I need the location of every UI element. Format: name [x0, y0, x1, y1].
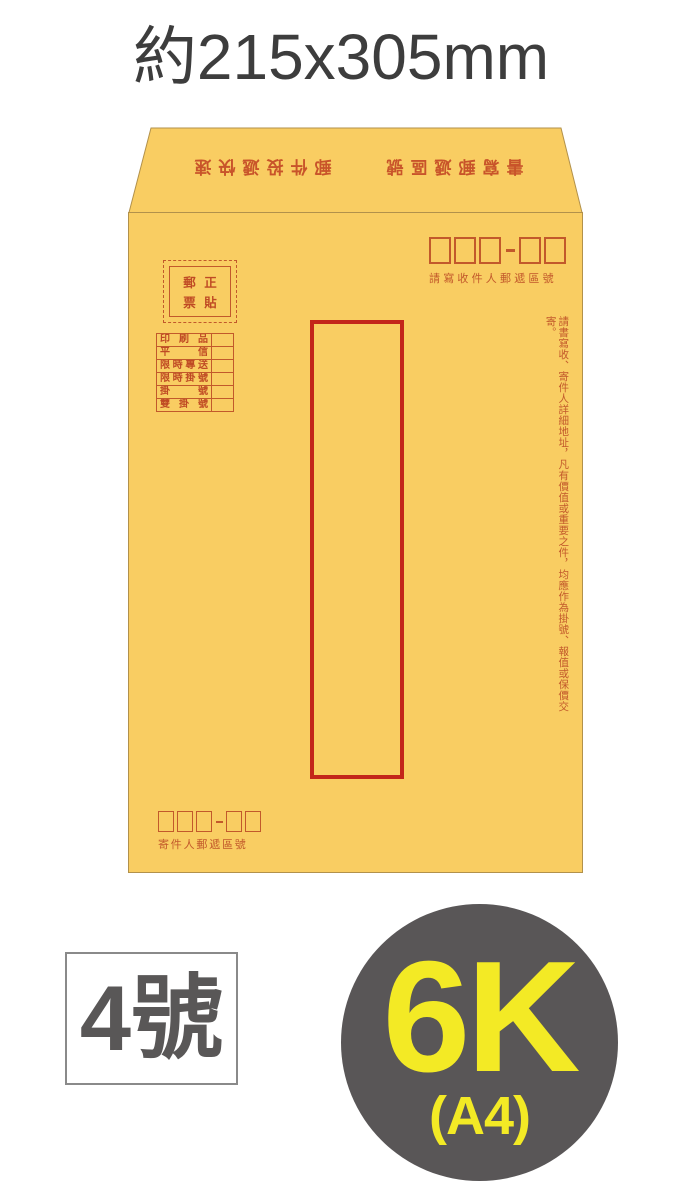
stamp-char: 貼 — [204, 292, 217, 311]
recipient-zip-label: 請寫收件人郵遞區號 — [429, 270, 569, 286]
envelope-illustration: 書寫郵遞區號 郵件投遞快速 郵 正 票 貼 請寫收件人郵遞區號 — [128, 127, 583, 873]
zip-digit-box — [177, 811, 193, 832]
mail-type-table: 印刷品 平信 限時專送 限時掛號 掛號 雙掛號 — [156, 333, 234, 412]
table-row: 限時掛號 — [157, 373, 233, 386]
size-title: 約215x305mm — [0, 6, 682, 98]
stamp-placement-box: 郵 正 票 貼 — [163, 260, 237, 323]
paper-size-subtext: (A4) — [429, 1089, 530, 1143]
envelope-number-badge: 4號 — [65, 952, 238, 1085]
mail-type-label: 掛號 — [157, 386, 211, 398]
mail-type-label: 印刷品 — [157, 334, 211, 346]
paper-size-badge: 6K (A4) — [341, 904, 618, 1181]
address-window — [310, 320, 404, 779]
mail-type-checkbox — [211, 347, 233, 359]
zip-dash — [506, 249, 515, 252]
stamp-inner-box: 郵 正 票 貼 — [169, 266, 231, 317]
envelope-number-text: 4號 — [80, 973, 223, 1065]
zip-digit-box — [196, 811, 212, 832]
recipient-zip-area: 請寫收件人郵遞區號 — [429, 237, 569, 286]
stamp-char: 郵 — [183, 272, 196, 291]
zip-digit-box — [429, 237, 451, 264]
mail-type-checkbox — [211, 399, 233, 411]
zip-dash — [216, 821, 223, 823]
mail-type-label: 限時掛號 — [157, 373, 211, 385]
mail-type-checkbox — [211, 360, 233, 372]
vertical-notice-text: 請書寫收、寄件人詳細地址，凡有價值或重要之件，均應作為掛號、報值或保價交寄。 — [544, 316, 569, 728]
flap-slogan-text: 書寫郵遞區號 郵件投遞快速 — [128, 156, 583, 181]
mail-type-checkbox — [211, 334, 233, 346]
zip-digit-box — [454, 237, 476, 264]
mail-type-label: 平信 — [157, 347, 211, 359]
mail-type-checkbox — [211, 373, 233, 385]
product-image: 約215x305mm 書寫郵遞區號 郵件投遞快速 郵 正 票 貼 — [0, 0, 682, 1190]
stamp-char: 票 — [183, 292, 196, 311]
sender-zip-area: 寄件人郵遞區號 — [158, 811, 278, 852]
table-row: 平信 — [157, 347, 233, 360]
recipient-zip-boxes — [429, 237, 569, 264]
zip-digit-box — [245, 811, 261, 832]
table-row: 雙掛號 — [157, 399, 233, 411]
mail-type-label: 雙掛號 — [157, 399, 211, 411]
zip-digit-box — [158, 811, 174, 832]
table-row: 限時專送 — [157, 360, 233, 373]
paper-size-text: 6K — [383, 942, 577, 1092]
mail-type-checkbox — [211, 386, 233, 398]
stamp-char: 正 — [204, 272, 217, 291]
sender-zip-label: 寄件人郵遞區號 — [158, 836, 278, 852]
zip-digit-box — [226, 811, 242, 832]
table-row: 掛號 — [157, 386, 233, 399]
mail-type-label: 限時專送 — [157, 360, 211, 372]
table-row: 印刷品 — [157, 334, 233, 347]
zip-digit-box — [479, 237, 501, 264]
zip-digit-box — [519, 237, 541, 264]
sender-zip-boxes — [158, 811, 278, 832]
zip-digit-box — [544, 237, 566, 264]
